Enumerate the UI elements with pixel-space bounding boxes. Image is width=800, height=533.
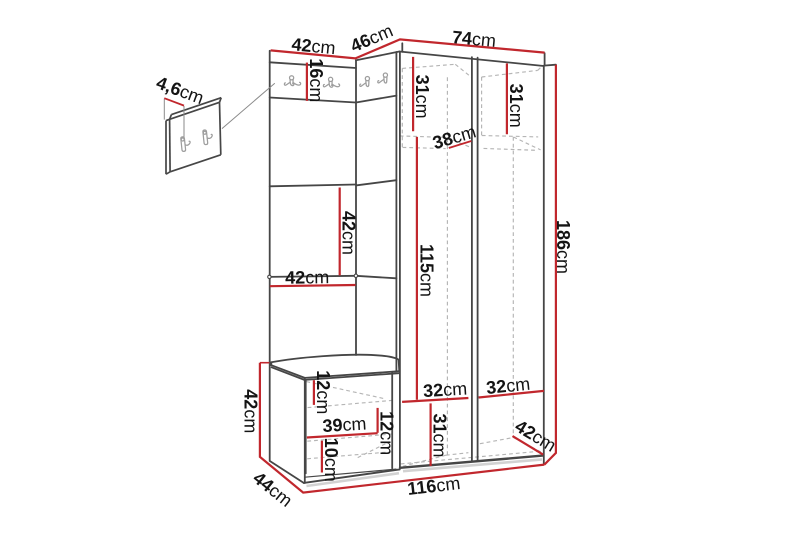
svg-text:31cm: 31cm: [412, 75, 432, 119]
svg-text:186cm: 186cm: [553, 220, 573, 274]
svg-text:42cm: 42cm: [285, 267, 329, 288]
svg-text:12cm: 12cm: [376, 411, 396, 455]
svg-text:74cm: 74cm: [451, 27, 497, 51]
svg-text:31cm: 31cm: [506, 84, 526, 128]
svg-text:42cm: 42cm: [291, 34, 337, 58]
svg-text:42cm: 42cm: [338, 211, 358, 255]
svg-text:39cm: 39cm: [322, 414, 367, 437]
svg-text:31cm: 31cm: [430, 413, 450, 457]
svg-text:42cm: 42cm: [241, 389, 261, 433]
svg-text:10cm: 10cm: [321, 438, 341, 482]
svg-text:115cm: 115cm: [416, 244, 436, 297]
svg-text:12cm: 12cm: [313, 370, 333, 414]
svg-text:32cm: 32cm: [423, 379, 468, 402]
svg-text:16cm: 16cm: [306, 58, 326, 102]
